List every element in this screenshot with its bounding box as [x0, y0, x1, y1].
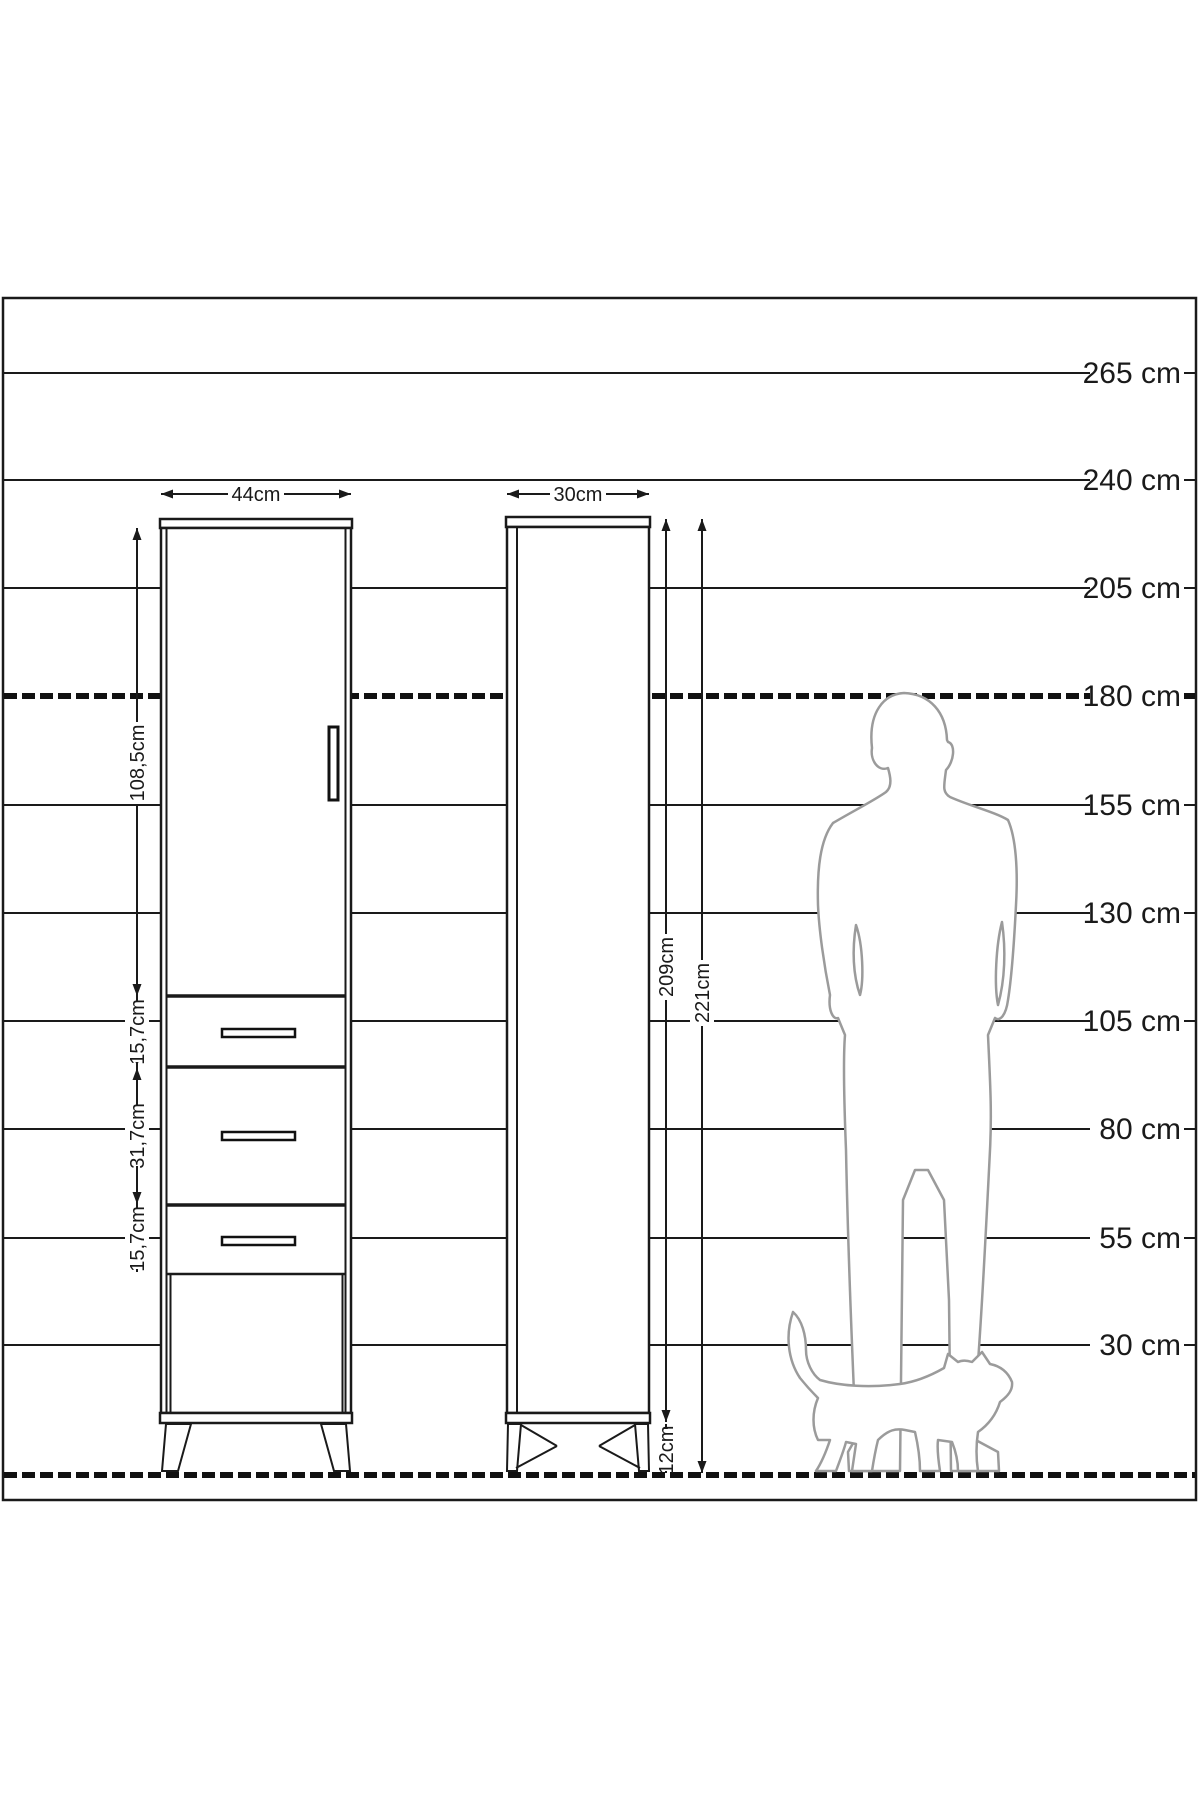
drawer-handle-3 — [222, 1237, 295, 1245]
scale-label-265: 265 cm — [1083, 357, 1181, 390]
scale-label-205: 205 cm — [1083, 572, 1181, 605]
carcass-height-label: 209cm — [656, 937, 678, 997]
furniture-dimension-diagram: 265 cm 240 cm 205 cm 180 cm 155 cm 130 c… — [0, 0, 1200, 1800]
diagram-canvas: 265 cm 240 cm 205 cm 180 cm 155 cm 130 c… — [0, 0, 1200, 1800]
side-bottom-panel — [506, 1413, 650, 1423]
door-handle — [329, 727, 338, 800]
scale-label-155: 155 cm — [1083, 789, 1181, 822]
side-carcass — [507, 527, 649, 1413]
drawer-top-height-label: 15,7cm — [127, 999, 149, 1065]
side-top-panel — [506, 517, 650, 527]
front-bottom-panel — [160, 1413, 352, 1423]
front-width-label: 44cm — [232, 484, 281, 506]
door-height-label: 108,5cm — [127, 725, 149, 802]
front-carcass — [161, 528, 351, 1413]
drawer-handle-1 — [222, 1029, 295, 1037]
scale-label-105: 105 cm — [1083, 1005, 1181, 1038]
scale-label-30: 30 cm — [1099, 1329, 1181, 1362]
cabinet-front-view — [160, 519, 352, 1471]
total-height-label: 221cm — [692, 963, 714, 1023]
drawer-bottom-height-label: 15,7cm — [127, 1206, 149, 1272]
cabinet-side-view — [506, 517, 650, 1471]
drawer-middle-height-label: 31,7cm — [127, 1103, 149, 1169]
scale-label-180: 180 cm — [1083, 680, 1181, 713]
scale-label-55: 55 cm — [1099, 1222, 1181, 1255]
front-top-panel — [160, 519, 352, 528]
drawer-handle-2 — [222, 1132, 295, 1140]
scale-label-130: 130 cm — [1083, 897, 1181, 930]
side-depth-label: 30cm — [554, 484, 603, 506]
scale-label-240: 240 cm — [1083, 464, 1181, 497]
leg-height-label: 12cm — [656, 1426, 678, 1475]
scale-label-80: 80 cm — [1099, 1113, 1181, 1146]
